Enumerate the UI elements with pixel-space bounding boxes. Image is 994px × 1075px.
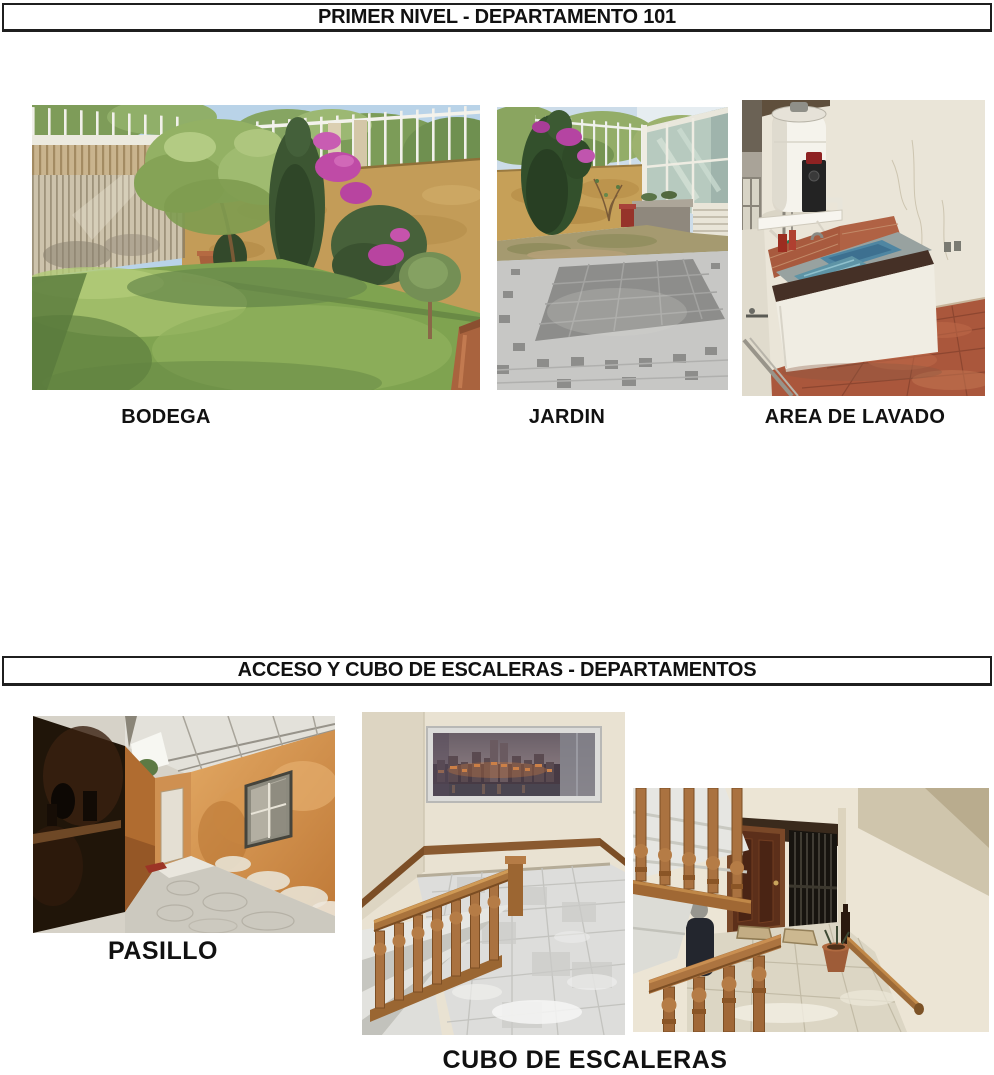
outlet: [944, 242, 951, 252]
section-header-acceso: ACCESO Y CUBO DE ESCALERAS - DEPARTAMENT…: [2, 656, 992, 686]
photo-cubo-escaleras-landing: [362, 712, 625, 1035]
corridor-window: [246, 772, 291, 847]
staircase-landing-illustration: [362, 712, 625, 1035]
photo-caption-bodega: BODEGA: [121, 406, 211, 429]
doormat: [737, 926, 772, 940]
doormat: [783, 929, 817, 945]
stairwell-illustration: [633, 788, 989, 1032]
photo-jardin: [497, 107, 728, 390]
section-header-primer-nivel: PRIMER NIVEL - DEPARTAMENTO 101: [2, 3, 992, 32]
white-slat-fence: [693, 203, 728, 236]
section-title-primer-nivel: PRIMER NIVEL - DEPARTAMENTO 101: [318, 6, 676, 28]
photo-caption-cubo-de-escaleras: CUBO DE ESCALERAS: [443, 1046, 728, 1075]
section-title-acceso: ACCESO Y CUBO DE ESCALERAS - DEPARTAMENT…: [238, 659, 757, 681]
photo-caption-jardin: JARDIN: [529, 406, 605, 429]
skyline-picture: [426, 726, 602, 803]
photo-caption-area-de-lavado: AREA DE LAVADO: [765, 406, 946, 429]
jardin-patio-illustration: [497, 107, 728, 390]
photo-caption-pasillo: PASILLO: [108, 937, 218, 966]
corridor-illustration: [33, 716, 335, 933]
photo-bodega: [32, 105, 480, 390]
laundry-area-illustration: [742, 100, 985, 396]
bodega-garden-illustration: [32, 105, 480, 390]
photo-cubo-escaleras-door: [633, 788, 989, 1032]
paved-patio: [497, 251, 728, 390]
end-wall-and-door: [155, 772, 191, 868]
outlet: [954, 241, 961, 251]
photo-area-de-lavado: [742, 100, 985, 396]
property-photo-sheet: PRIMER NIVEL - DEPARTAMENTO 101: [0, 0, 994, 1075]
photo-pasillo: [33, 716, 335, 933]
